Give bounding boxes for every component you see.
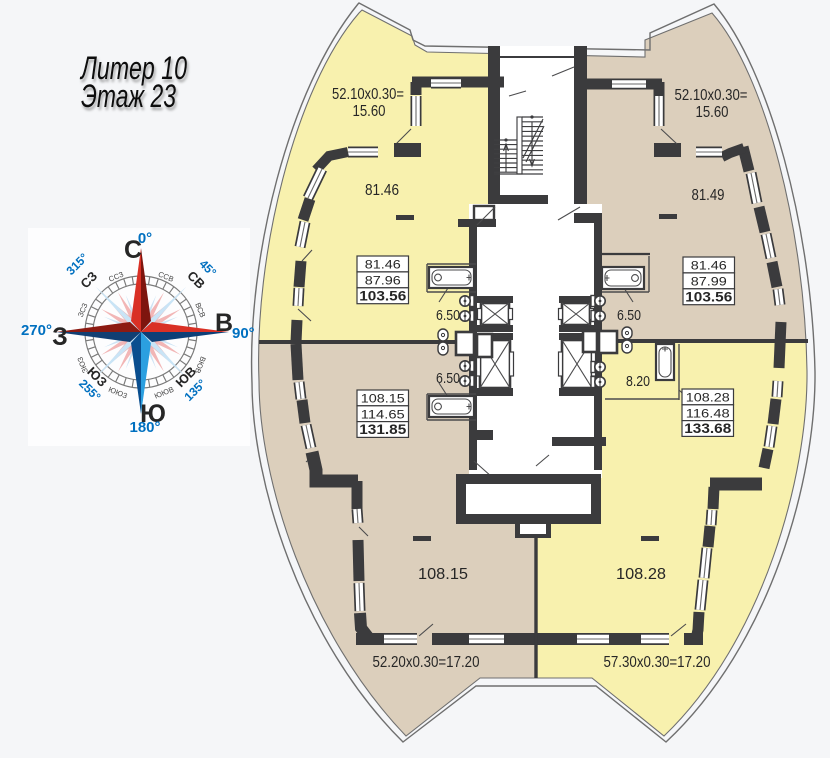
svg-text:В: В <box>215 309 233 337</box>
svg-text:131.85: 131.85 <box>359 422 406 437</box>
svg-text:52.10x0.30=: 52.10x0.30= <box>675 87 748 104</box>
svg-text:15.60: 15.60 <box>353 103 386 120</box>
svg-text:52.20x0.30=17.20: 52.20x0.30=17.20 <box>373 654 480 671</box>
svg-text:8.20: 8.20 <box>626 374 650 390</box>
svg-text:87.96: 87.96 <box>365 274 401 288</box>
svg-text:114.65: 114.65 <box>361 407 405 421</box>
svg-text:15.60: 15.60 <box>696 104 729 121</box>
svg-text:З: З <box>52 323 68 351</box>
svg-text:81.46: 81.46 <box>365 182 399 199</box>
svg-text:108.28: 108.28 <box>616 566 666 583</box>
svg-text:57.30x0.30=17.20: 57.30x0.30=17.20 <box>604 654 711 671</box>
svg-text:81.46: 81.46 <box>691 259 727 273</box>
svg-text:6.50: 6.50 <box>436 308 460 324</box>
svg-text:108.15: 108.15 <box>418 566 468 583</box>
svg-text:180°: 180° <box>129 419 160 436</box>
svg-text:133.68: 133.68 <box>684 421 731 436</box>
svg-text:90°: 90° <box>232 325 255 342</box>
svg-text:116.48: 116.48 <box>686 406 730 420</box>
svg-text:108.28: 108.28 <box>686 391 730 405</box>
svg-text:0°: 0° <box>138 230 152 247</box>
svg-text:81.46: 81.46 <box>365 258 401 272</box>
svg-text:6.50: 6.50 <box>436 371 460 387</box>
svg-text:270°: 270° <box>21 322 52 339</box>
svg-text:87.99: 87.99 <box>691 275 727 289</box>
svg-text:52.10x0.30=: 52.10x0.30= <box>332 86 404 103</box>
svg-text:81.49: 81.49 <box>692 187 725 204</box>
svg-text:103.56: 103.56 <box>359 289 406 304</box>
svg-text:103.56: 103.56 <box>685 290 732 305</box>
svg-text:6.50: 6.50 <box>617 308 641 324</box>
svg-text:108.15: 108.15 <box>361 392 405 406</box>
svg-text:Этаж 23: Этаж 23 <box>81 78 176 114</box>
